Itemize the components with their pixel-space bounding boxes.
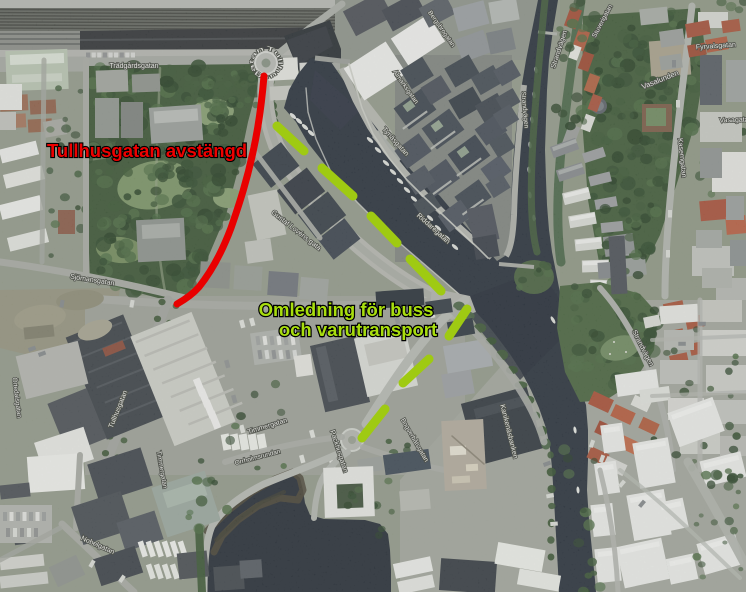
svg-text:Tullhusgatan avstängd: Tullhusgatan avstängd: [47, 140, 247, 161]
svg-text:Omledning för buss: Omledning för buss: [259, 299, 434, 320]
svg-text:och varutransport: och varutransport: [279, 319, 437, 340]
